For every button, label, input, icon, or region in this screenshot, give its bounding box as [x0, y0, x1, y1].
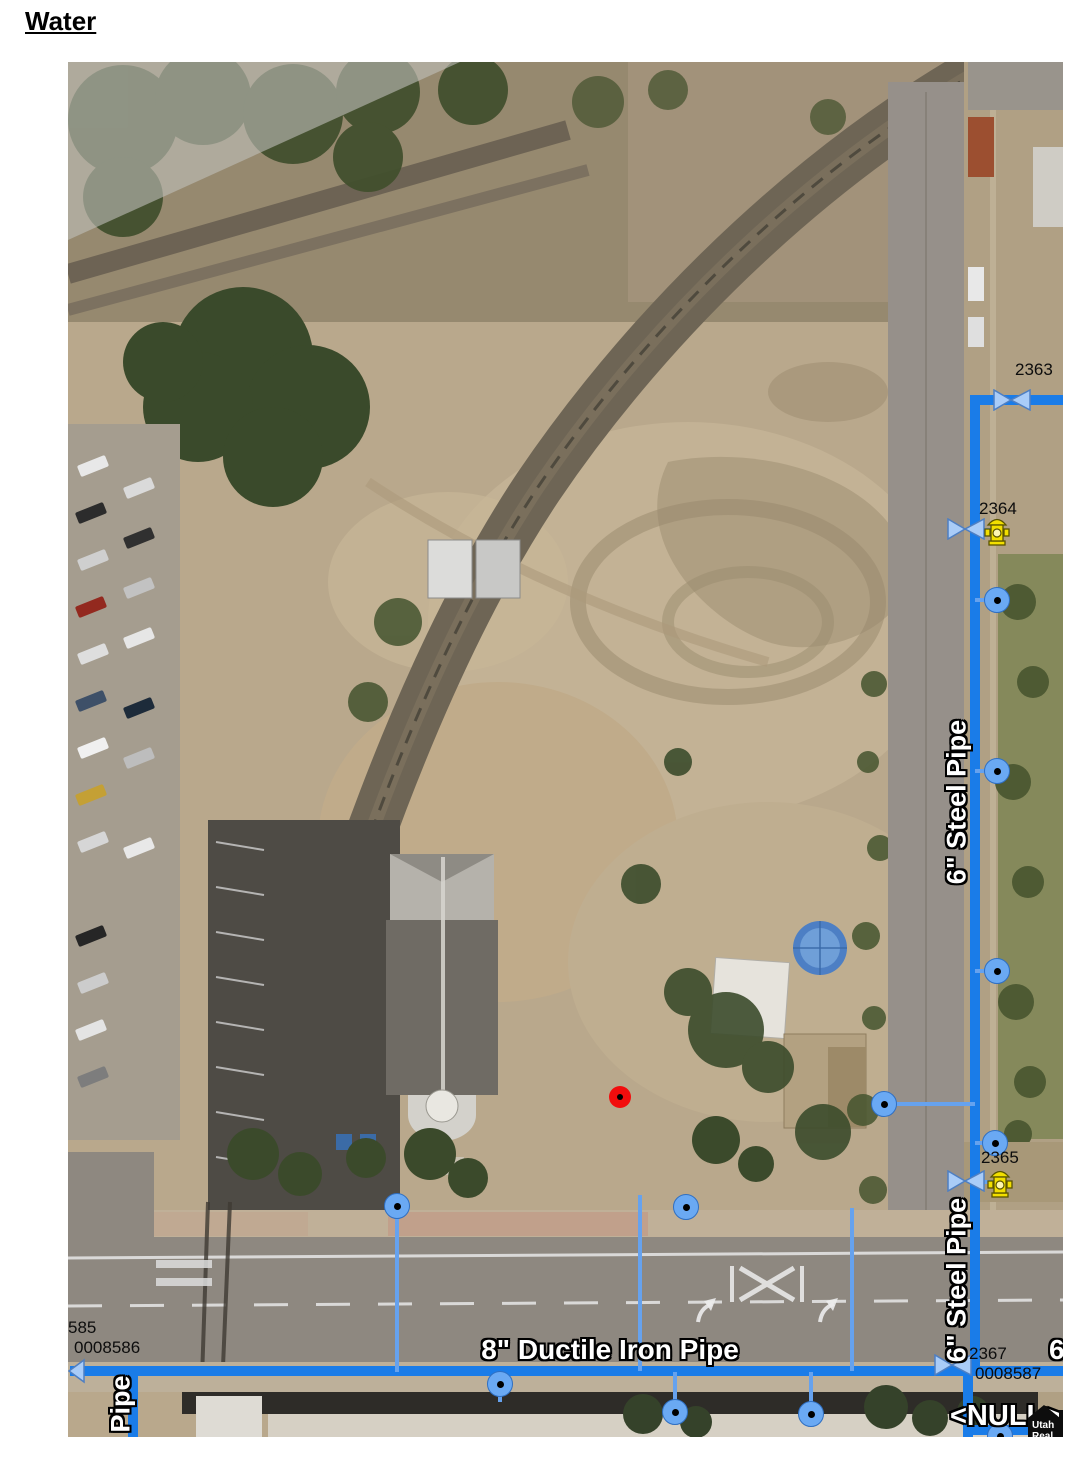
service-line[interactable] [884, 1102, 975, 1106]
water-main-bottom[interactable] [70, 1366, 1063, 1376]
valve-icon[interactable] [947, 1170, 985, 1192]
svg-text:Real: Real [1032, 1431, 1053, 1437]
water-node[interactable] [984, 958, 1010, 984]
feature-id-label: 0008586 [74, 1338, 140, 1358]
pipe-label-6in-steel-upper: 6" Steel Pipe [942, 720, 973, 884]
valve-icon[interactable] [947, 518, 985, 540]
water-node[interactable] [673, 1194, 699, 1220]
hydrant-icon[interactable] [987, 1165, 1013, 1199]
water-node[interactable] [984, 587, 1010, 613]
aerial-photo [68, 62, 1063, 1437]
water-node[interactable] [487, 1371, 513, 1397]
pipe-label-6in-steel-lower: 6" Steel Pipe [942, 1198, 973, 1362]
feature-id-label: 2364 [979, 499, 1017, 519]
water-node[interactable] [871, 1091, 897, 1117]
water-node[interactable] [384, 1193, 410, 1219]
water-node[interactable] [662, 1399, 688, 1425]
utah-real-estate-watermark: Utah Real [1026, 1402, 1063, 1437]
selected-point-marker[interactable] [609, 1086, 631, 1108]
water-node[interactable] [984, 758, 1010, 784]
pipe-label-8in-ductile: 8" Ductile Iron Pipe [481, 1334, 739, 1366]
feature-id-label: 2363 [1015, 360, 1053, 380]
map-viewport[interactable]: 2363 2364 2365 2367 0008587 585 0008586 … [68, 62, 1063, 1437]
valve-icon[interactable] [993, 389, 1031, 411]
feature-id-label: 0008587 [975, 1364, 1041, 1384]
feature-id-label: 2367 [969, 1344, 1007, 1364]
feature-id-label: 2365 [981, 1148, 1019, 1168]
service-line[interactable] [850, 1208, 854, 1371]
pipe-end-arrow [68, 1358, 85, 1384]
pipe-label-partial-left: Pipe [106, 1375, 137, 1432]
pipe-label-partial-right: 6" [1049, 1334, 1063, 1366]
document-page: Water [0, 0, 1078, 1458]
service-line[interactable] [395, 1206, 399, 1372]
water-node[interactable] [798, 1401, 824, 1427]
page-title: Water [25, 6, 96, 37]
svg-text:Utah: Utah [1032, 1420, 1054, 1431]
feature-id-label: 585 [68, 1318, 96, 1338]
